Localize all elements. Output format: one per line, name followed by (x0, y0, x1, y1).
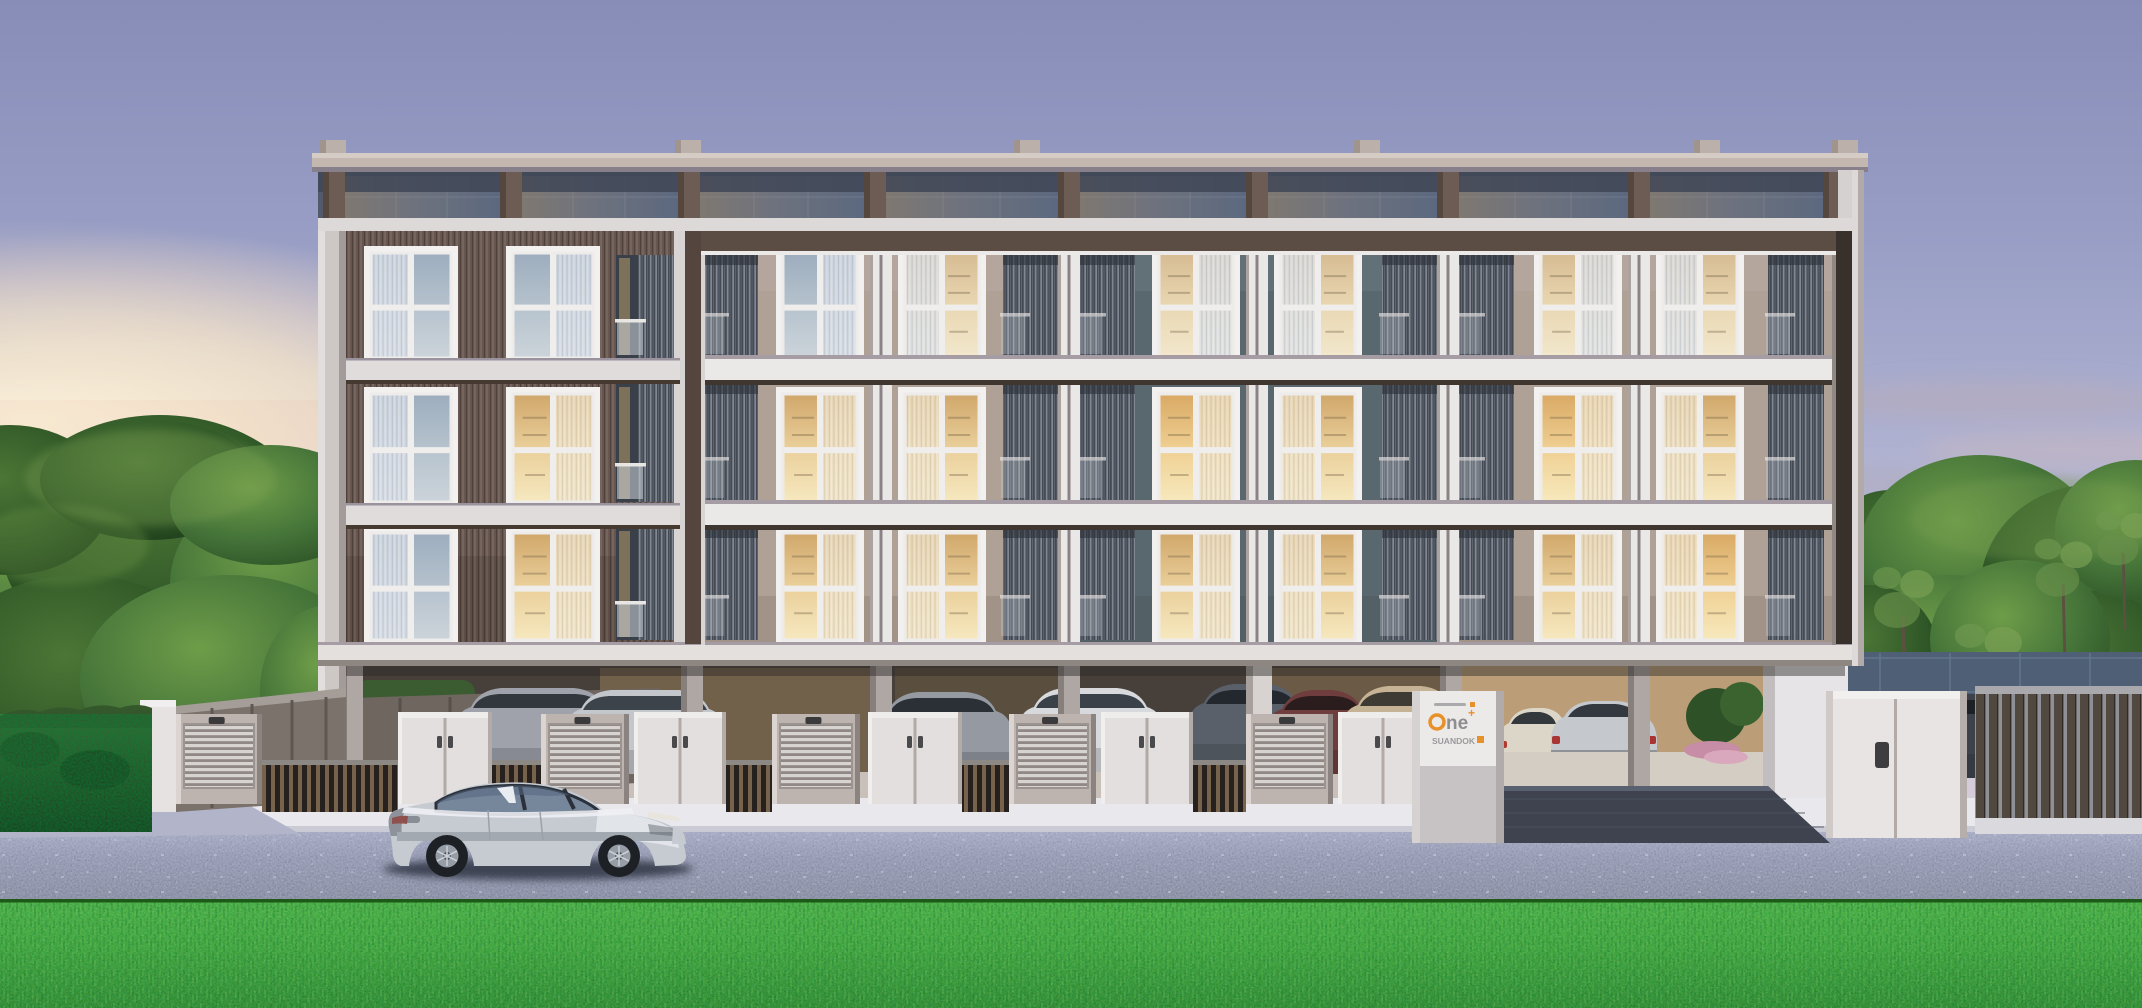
svg-text:+: + (1468, 706, 1475, 720)
svg-text:SUANDOK: SUANDOK (1432, 736, 1476, 746)
svg-text:ne: ne (1446, 713, 1468, 734)
